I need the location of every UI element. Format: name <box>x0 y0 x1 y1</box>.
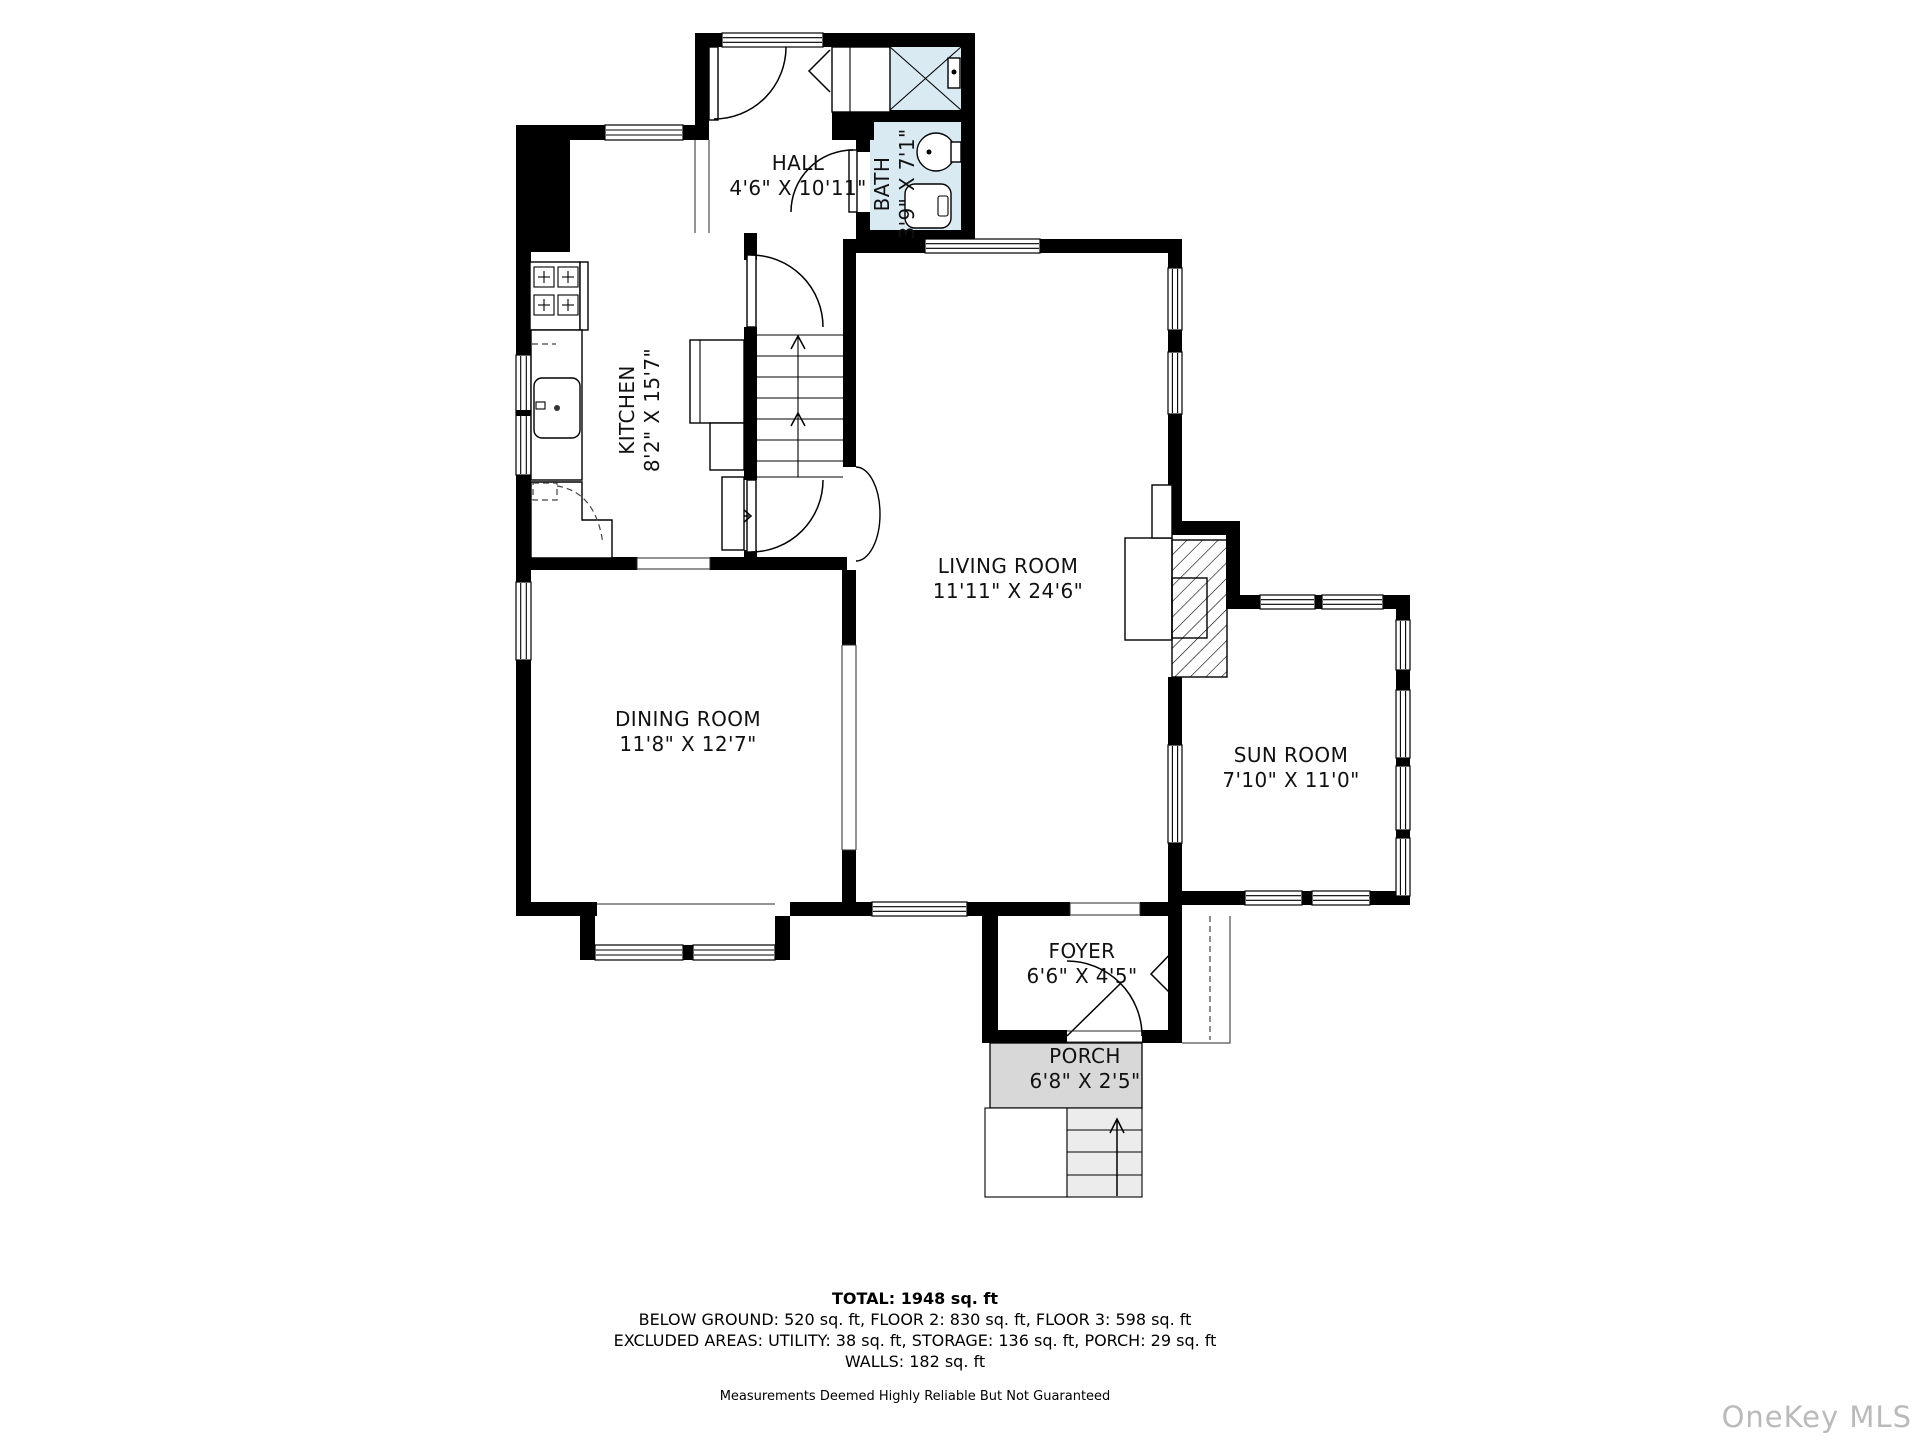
room-label-porch: PORCH 6'8" X 2'5" <box>1029 1044 1140 1094</box>
onekey-mls-watermark: OneKey MLS <box>1722 1400 1912 1434</box>
kitchen-counter-l <box>531 482 612 558</box>
floor-plan-canvas <box>0 0 1920 1440</box>
room-dims: 3'9" X 7'1" <box>895 128 920 239</box>
room-dims: 6'6" X 4'5" <box>1026 964 1137 989</box>
room-label-bath: BATH 3'9" X 7'1" <box>870 128 920 239</box>
front-door-leaf <box>1067 983 1121 1036</box>
hearth <box>1125 538 1172 640</box>
room-label-sun-room: SUN ROOM 7'10" X 11'0" <box>1222 743 1359 793</box>
total-area: TOTAL: 1948 sq. ft <box>315 1288 1515 1309</box>
chimney-mass <box>531 125 570 252</box>
room-label-dining-room: DINING ROOM 11'8" X 12'7" <box>615 707 761 757</box>
room-name: LIVING ROOM <box>933 554 1083 579</box>
room-dims: 8'2" X 15'7" <box>640 348 665 472</box>
fireplace <box>1172 540 1227 677</box>
room-label-living-room: LIVING ROOM 11'11" X 24'6" <box>933 554 1083 604</box>
refrigerator <box>690 340 744 423</box>
counter <box>710 423 744 470</box>
room-dims: 7'10" X 11'0" <box>1222 768 1359 793</box>
walls-area: WALLS: 182 sq. ft <box>315 1351 1515 1372</box>
room-name: FOYER <box>1026 939 1137 964</box>
room-label-kitchen: KITCHEN 8'2" X 15'7" <box>615 348 665 472</box>
room-label-foyer: FOYER 6'6" X 4'5" <box>1026 939 1137 989</box>
floorplan-page: HALL 4'6" X 10'11" BATH 3'9" X 7'1" KITC… <box>0 0 1920 1440</box>
arched-opening <box>856 467 880 561</box>
room-dims: 11'8" X 12'7" <box>615 732 761 757</box>
room-dims: 11'11" X 24'6" <box>933 579 1083 604</box>
excluded-areas: EXCLUDED AREAS: UTILITY: 38 sq. ft, STOR… <box>315 1330 1515 1351</box>
room-dims: 4'6" X 10'11" <box>729 176 866 201</box>
closet-door-leaf <box>709 47 718 120</box>
hall-closet <box>832 47 890 112</box>
room-name: BATH <box>870 128 895 239</box>
staircase <box>757 335 843 477</box>
chimney-breast <box>1152 485 1172 538</box>
room-name: HALL <box>729 151 866 176</box>
faucet <box>554 405 560 411</box>
cabinet <box>722 477 744 550</box>
stoop-landing <box>985 1108 1067 1197</box>
bifold-door <box>809 50 830 92</box>
room-name: SUN ROOM <box>1222 743 1359 768</box>
stove <box>530 262 580 330</box>
side-stoop-outline <box>1182 916 1230 1043</box>
door-swing-arc <box>751 255 823 327</box>
room-name: KITCHEN <box>615 348 640 472</box>
floor-areas: BELOW GROUND: 520 sq. ft, FLOOR 2: 830 s… <box>315 1309 1515 1330</box>
room-dims: 6'8" X 2'5" <box>1029 1069 1140 1094</box>
room-label-hall: HALL 4'6" X 10'11" <box>729 151 866 201</box>
bath-sink <box>917 133 955 171</box>
room-name: PORCH <box>1029 1044 1140 1069</box>
disclaimer: Measurements Deemed Highly Reliable But … <box>315 1386 1515 1407</box>
hall-door-leaf <box>747 255 756 327</box>
door-swing-arc <box>751 480 823 552</box>
room-name: DINING ROOM <box>615 707 761 732</box>
door-swing-arc <box>714 47 786 119</box>
area-summary: TOTAL: 1948 sq. ft BELOW GROUND: 520 sq.… <box>315 1288 1515 1407</box>
